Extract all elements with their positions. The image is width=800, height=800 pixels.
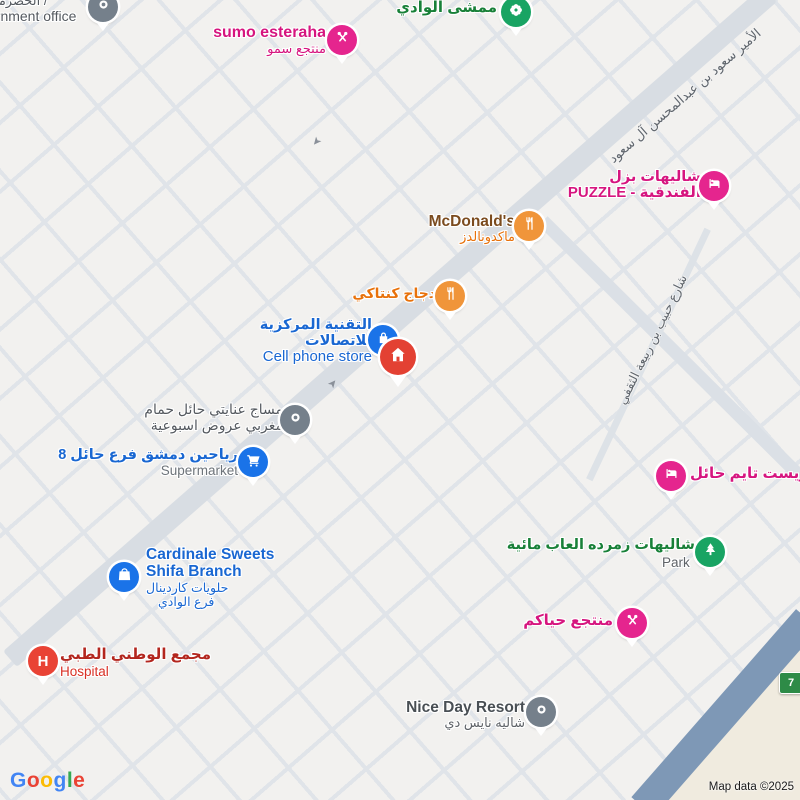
nice-day-resort-label[interactable]: Nice Day Resort شاليه نايس دي [406,699,525,731]
cart-icon [246,452,261,472]
massage-pin[interactable] [280,405,310,435]
cardinale-sweets-pin[interactable] [109,562,139,592]
resort-icon [625,613,640,633]
hospital-icon: H [38,653,49,670]
generic-place-icon [534,702,549,722]
street-grid [0,0,800,800]
bed-icon [664,466,679,486]
rest-time-hail-label[interactable]: ريست تايم حائل [690,466,800,483]
destination-pin[interactable] [380,339,416,375]
rest-time-hail-pin[interactable] [656,461,686,491]
zamurda-park-label[interactable]: Park [662,555,690,570]
hayakum-resort-pin[interactable] [617,608,647,638]
zamurda-chalets-pin[interactable] [695,537,725,567]
bed-icon [707,176,722,196]
kfc-pin[interactable] [435,281,465,311]
restaurant-icon [443,286,458,306]
rayaheen-supermarket-label[interactable]: رياحين دمشق فرع حائل 8 Supermarket [58,447,238,478]
tree-icon [703,542,718,562]
mamsha-alwadi-label[interactable]: ممشى الوادي [396,0,497,17]
park-flower-icon [508,2,524,23]
google-logo[interactable]: Google [10,769,85,793]
kfc-label[interactable]: دجاج كنتاكي [352,286,436,302]
puzzle-chalets-label[interactable]: شاليهات بزل الفندقية - PUZZLE [568,169,701,202]
map-attribution: Map data ©2025 [709,781,794,793]
government-office-label[interactable]: الحضرمي / ernment office [0,0,76,24]
cardinale-sweets-label[interactable]: Cardinale Sweets Shifa Branch حلويات كار… [146,546,274,609]
restaurant-icon [522,216,537,236]
shopping-bag-icon [117,567,132,587]
massage-label[interactable]: مساج عنايتي حائل حمام مغربي عروض اسبوعية [144,402,283,433]
resort-icon [335,30,350,50]
mcdonalds-label[interactable]: McDonald's ماكدونالدز [429,213,515,245]
puzzle-chalets-pin[interactable] [699,171,729,201]
hayakum-resort-label[interactable]: منتجع حياكم [523,613,613,630]
sumo-esteraha-pin[interactable] [327,25,357,55]
rayaheen-supermarket-pin[interactable] [238,447,268,477]
government-office-name-en: ernment office [0,9,76,25]
zamurda-chalets-label[interactable]: شاليهات زمرده العاب مائية [507,537,695,553]
mcdonalds-pin[interactable] [514,211,544,241]
map-canvas[interactable]: الأمير سعود بن عبدالمحسن آل سعود شارع حب… [0,0,800,800]
route-shield-7: 7 [779,672,800,694]
generic-place-icon [288,410,303,430]
national-medical-pin[interactable]: H [28,646,58,676]
government-icon [96,0,111,17]
nice-day-resort-pin[interactable] [526,697,556,727]
national-medical-label[interactable]: مجمع الوطني الطبي Hospital [60,647,211,679]
central-tech-label[interactable]: التقنية المركزية للاتصالات Cell phone st… [260,317,372,366]
sumo-esteraha-label[interactable]: sumo esteraha منتجع سمو [213,24,326,56]
house-icon [388,345,408,370]
